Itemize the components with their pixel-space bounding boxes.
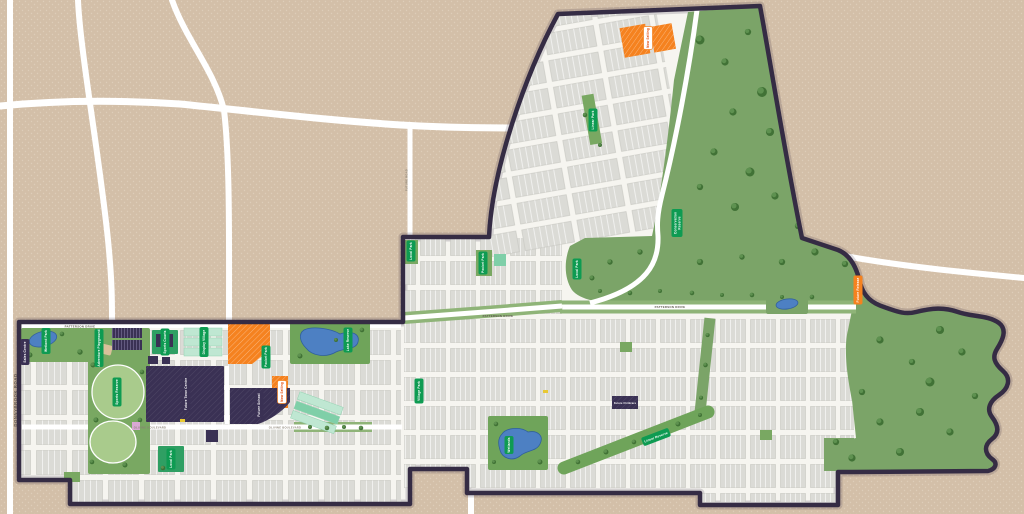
label-pill-wetlands-south: Wetlands [505,436,514,454]
svg-text:Pocket Park: Pocket Park [481,253,485,273]
svg-text:Linear Park: Linear Park [591,110,595,129]
patterson-drive-label-w: PATTERSON DRIVE [65,324,96,328]
label-pill-pocket-park-b: Pocket Park [262,346,271,369]
label-pill-conservation-reserve: Conservation Reserve [672,209,683,237]
svg-text:Lake Reserve: Lake Reserve [346,329,350,351]
svg-text:Now Selling: Now Selling [646,28,650,48]
pocket-park-east-b [760,430,772,440]
svg-text:Adventure Playground: Adventure Playground [97,329,101,366]
svg-text:Reserve: Reserve [678,216,682,230]
svg-text:Local Park: Local Park [169,450,173,468]
label-pill-future-town-centre: Future Town Centre [182,377,191,412]
olivine-boulevard-label-e: OLIVINE BOULEVARD [269,425,301,429]
yellow-block [543,390,548,393]
label-pill-future-release-east: Future Release [854,276,863,305]
label-pill-pocket-park-a: Pocket Park [479,252,488,275]
svg-text:Pocket Park: Pocket Park [264,347,268,367]
label-pill-village-park: Village Park [415,379,424,404]
label-pill-lake-reserve: Lake Reserve [344,328,353,353]
svg-text:Future Town Centre: Future Town Centre [184,378,188,411]
svg-text:Sports Reserve: Sports Reserve [115,379,119,405]
label-pill-now-selling-west: Now Selling [278,381,287,404]
olivine-boulevard-label-w: OLIVINE BOULEVARD [134,425,166,429]
label-pill-sports-courts: Sports Courts [161,329,170,356]
svg-text:Local Park: Local Park [575,260,579,278]
label-pill-adventure-playground: Adventure Playground [95,329,104,367]
label-pill-future-school: Future School [255,392,264,419]
svg-text:Future Release: Future Release [856,277,860,302]
svg-text:Local Park: Local Park [409,242,413,260]
label-pill-wetland-park: Wetland Park [42,328,51,354]
lake-reserve-park [290,322,370,364]
label-pill-local-park-mid: Local Park [573,259,582,280]
patterson-drive-label-mid: PATTERSON DRIVE [483,314,514,318]
label-pill-now-selling-north: Now Selling [644,27,653,50]
future-road-label: FUTURE ROAD [405,169,409,191]
svg-text:Future School: Future School [257,393,261,416]
sports-oval-south [90,421,136,463]
svg-text:Display Village: Display Village [202,330,206,355]
wetlands-south-park [488,416,548,470]
svg-text:Sales Centre: Sales Centre [23,341,27,362]
svg-text:Wetlands: Wetlands [507,437,511,452]
label-pill-display-village: Display Village [200,327,209,357]
pocket-park-east-a [620,342,632,352]
navy-block-small-a [206,430,218,442]
label-pill-local-park-south: Local Park [167,449,176,470]
svg-text:Future Childcare: Future Childcare [614,402,637,405]
svg-text:Village Park: Village Park [417,381,421,401]
label-pill-sales-centre: Sales Centre [21,339,30,365]
wetland-park [21,328,93,362]
masterplan-map: DONNYBROOK ROAD FUTURE ROAD [0,0,1024,514]
svg-text:Now Selling: Now Selling [280,382,284,402]
pond-northeast [766,294,808,314]
patterson-drive-label-e: PATTERSON DRIVE [655,305,686,309]
label-future-childcare: Future Childcare [614,402,637,405]
label-pill-local-park-nw: Local Park [407,241,416,262]
svg-text:Wetland Park: Wetland Park [44,330,48,352]
label-pill-linear-park: Linear Park [589,109,598,132]
svg-text:Sports Courts: Sports Courts [163,330,167,353]
label-pill-sports-reserve: Sports Reserve [113,378,122,407]
